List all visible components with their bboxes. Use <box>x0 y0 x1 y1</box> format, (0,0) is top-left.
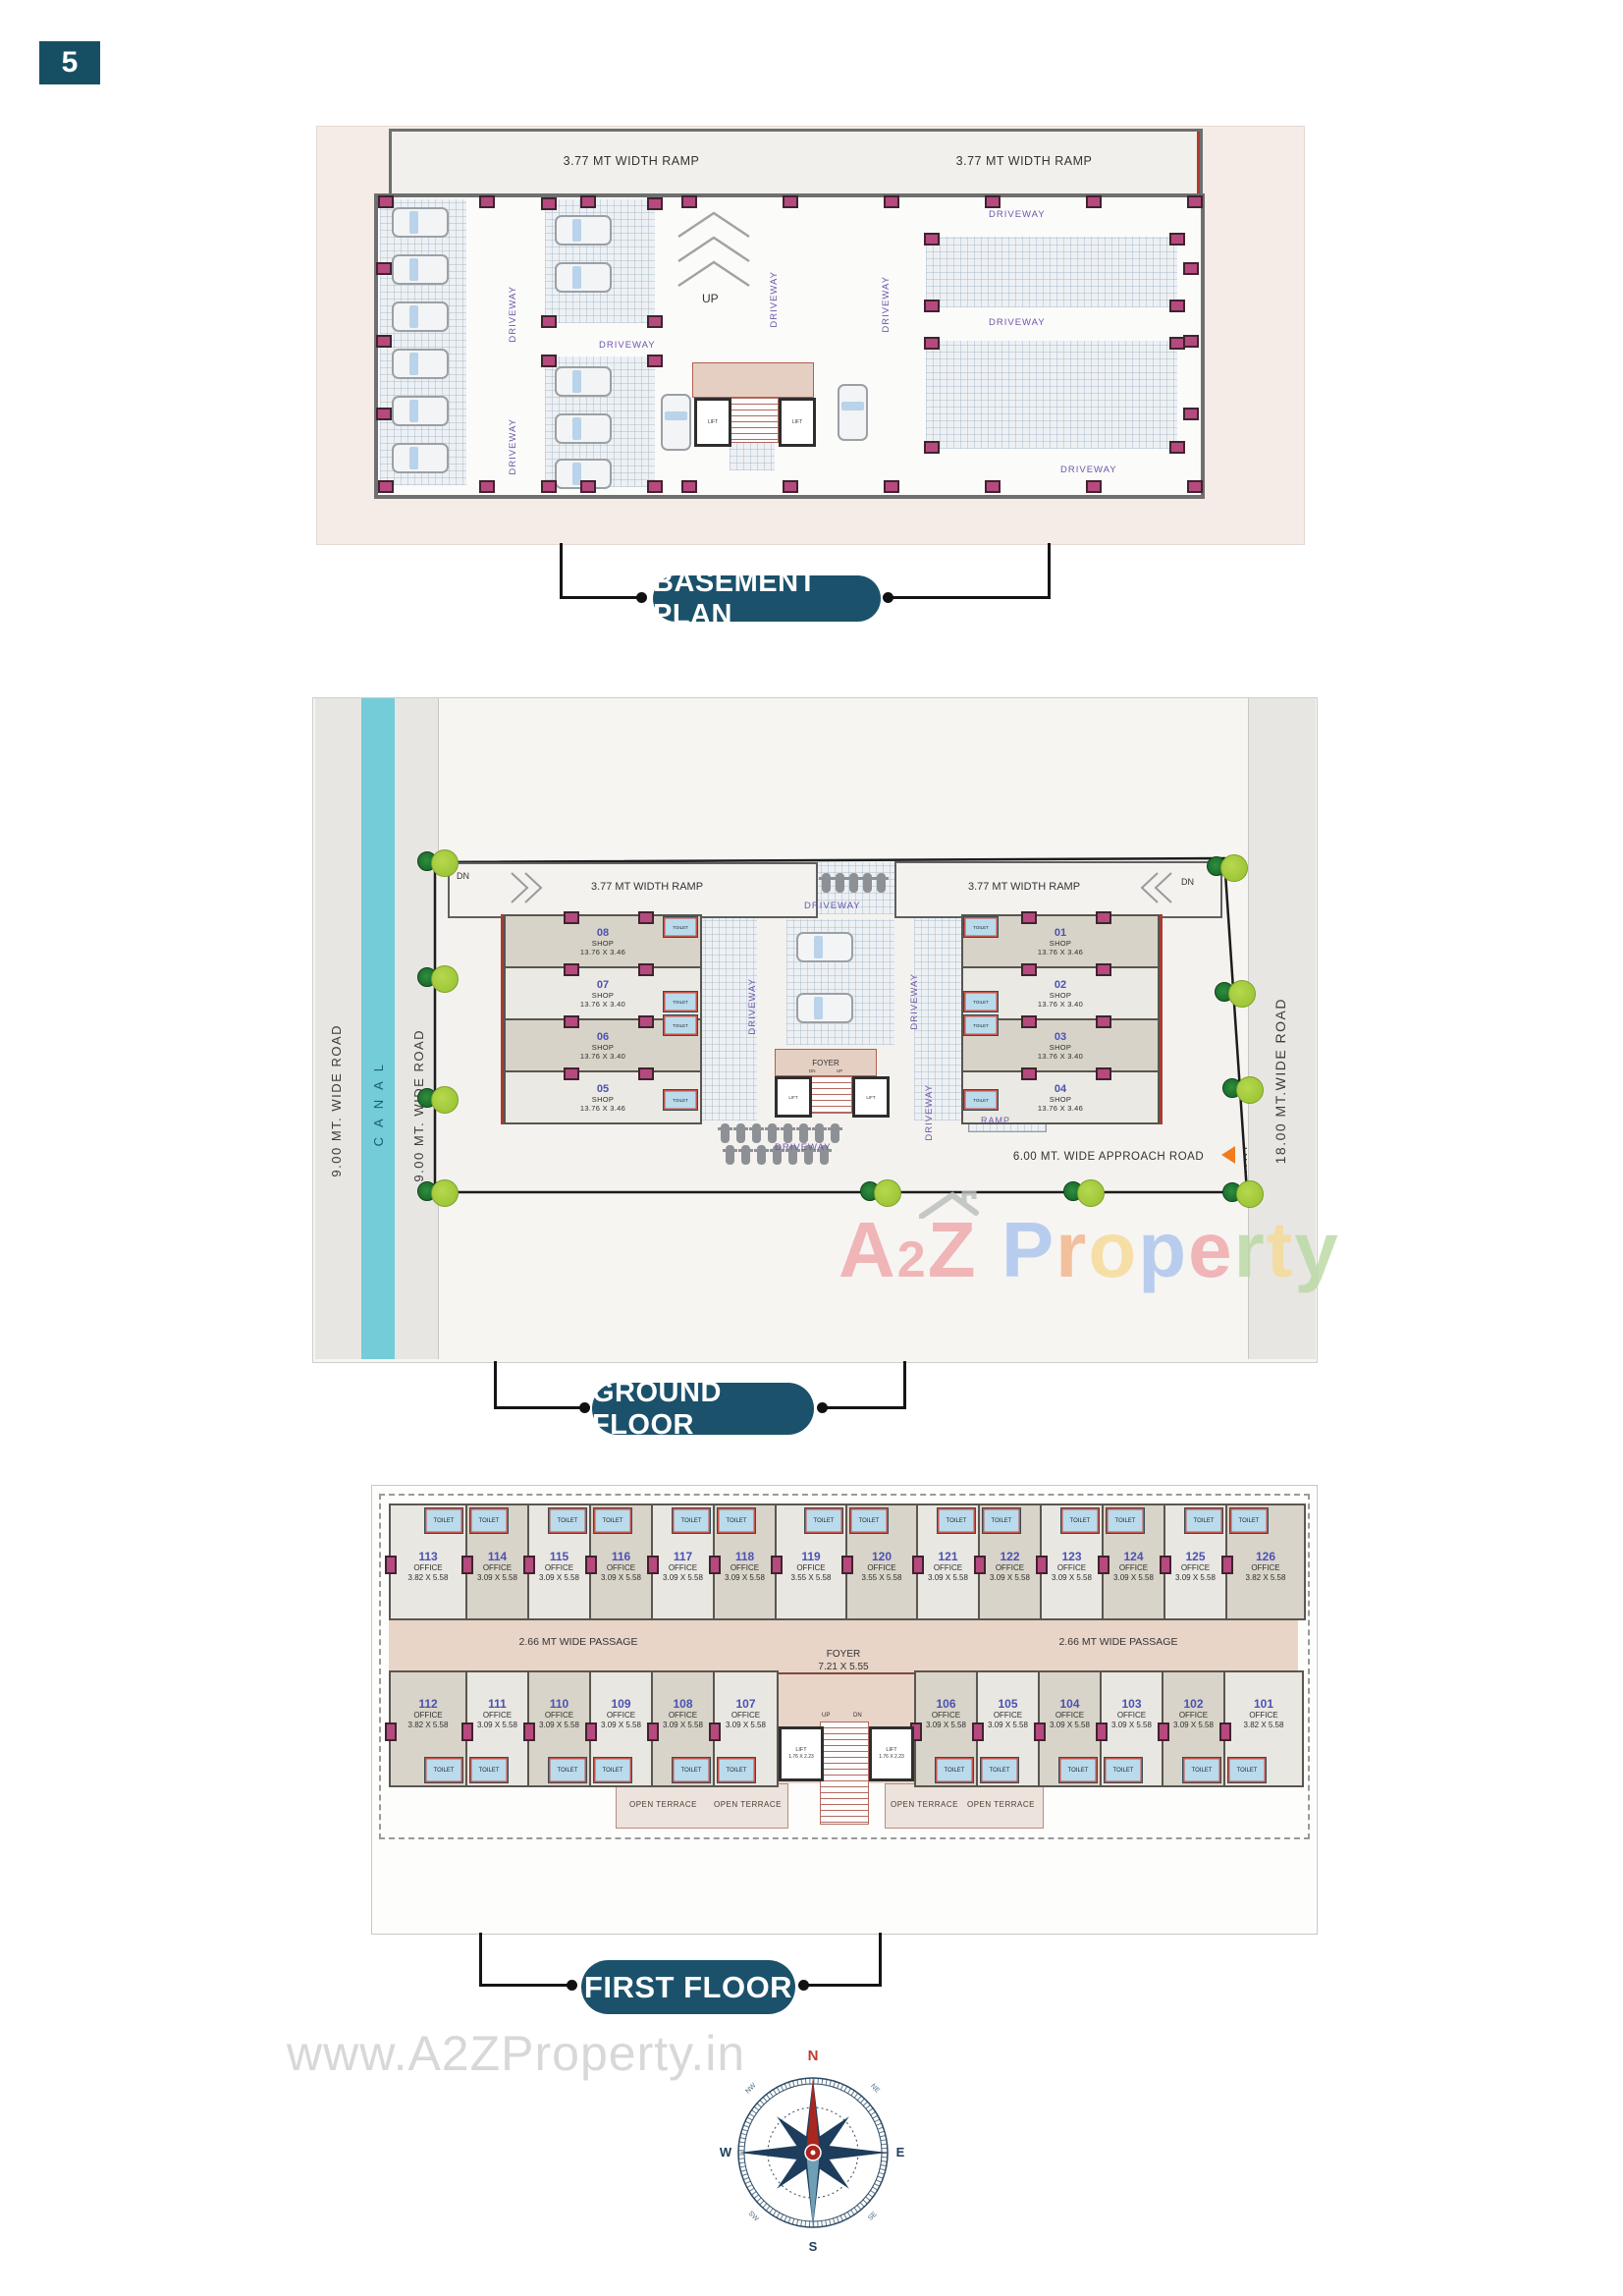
column-marker <box>376 262 392 275</box>
toilet-label: TOILET <box>479 1518 500 1524</box>
toilet-label: TOILET <box>1237 1768 1258 1774</box>
office-number: 118 <box>735 1551 754 1563</box>
page-number-badge: 5 <box>39 41 100 84</box>
bike-icon <box>757 1145 766 1165</box>
toilet-label: TOILET <box>945 1768 965 1774</box>
bike-icon <box>877 873 886 893</box>
connector-line <box>892 596 1051 599</box>
toilet-label: TOILET <box>673 1000 688 1005</box>
driveway-label: DRIVEWAY <box>508 286 518 343</box>
office-number: 103 <box>1121 1698 1141 1711</box>
terrace-label: OPEN TERRACE <box>891 1800 958 1809</box>
connector-line <box>494 1406 584 1409</box>
toilet-label: TOILET <box>673 1098 688 1103</box>
office-label: 109OFFICE3.09 X 5.58 <box>601 1698 641 1730</box>
shop-type: SHOP <box>592 991 614 1000</box>
column-marker <box>1086 195 1102 208</box>
shop-type: SHOP <box>1050 991 1071 1000</box>
shop-number: 02 <box>1055 979 1066 991</box>
toilet-room: TOILET <box>1229 1507 1269 1534</box>
toilet-room: TOILET <box>963 916 999 938</box>
driveway-label: DRIVEWAY <box>909 973 920 1030</box>
office-type: OFFICE <box>607 1563 635 1573</box>
column-marker <box>647 197 663 210</box>
connector-line <box>560 543 563 599</box>
driveway-label: DRIVEWAY <box>804 901 861 911</box>
toilet-label: TOILET <box>673 925 688 930</box>
office-type: OFFICE <box>1179 1711 1208 1721</box>
car-icon <box>796 932 853 962</box>
office-number: 106 <box>936 1698 955 1711</box>
office-unit: 107OFFICE3.09 X 5.58TOILET <box>715 1672 777 1785</box>
office-number: 104 <box>1059 1698 1079 1711</box>
office-unit: 118OFFICE3.09 X 5.58TOILET <box>715 1505 777 1618</box>
tree-foliage-light <box>874 1179 901 1207</box>
office-label: 120OFFICE3.55 X 5.58 <box>862 1551 902 1583</box>
toilet-label: TOILET <box>947 1518 967 1524</box>
shop-dim: 13.76 X 3.46 <box>1038 948 1083 957</box>
connector-dot <box>567 1980 577 1991</box>
shop-dim: 13.76 X 3.40 <box>580 1052 625 1061</box>
column-marker <box>1086 480 1102 493</box>
shop-number: 04 <box>1055 1083 1066 1095</box>
column-marker <box>1183 335 1199 348</box>
office-number: 102 <box>1183 1698 1203 1711</box>
lift-room: LIFT <box>775 1076 812 1118</box>
column-marker <box>985 480 1001 493</box>
column-marker <box>647 480 663 493</box>
connector-line <box>560 596 640 599</box>
office-dim: 3.09 X 5.58 <box>1175 1573 1216 1583</box>
connector-dot <box>883 592 893 603</box>
bike-icon <box>741 1145 750 1165</box>
office-type: OFFICE <box>483 1711 512 1721</box>
bike-icon <box>736 1123 745 1143</box>
compass-se-label: SE <box>867 2211 879 2222</box>
office-row-bottom-right: 106OFFICE3.09 X 5.58TOILET105OFFICE3.09 … <box>914 1670 1304 1787</box>
toilet-label: TOILET <box>727 1768 747 1774</box>
parking-bay <box>926 341 1177 449</box>
shop-type: SHOP <box>592 1043 614 1052</box>
basement-ramp-label-left: 3.77 MT WIDTH RAMP <box>435 154 828 168</box>
toilet-room: TOILET <box>672 1507 711 1534</box>
core-lobby <box>692 362 814 398</box>
lift-dim: 1.76 X 2.23 <box>788 1754 814 1761</box>
car-icon <box>555 215 612 246</box>
terrace-label: OPEN TERRACE <box>629 1800 697 1809</box>
shop-number: 03 <box>1055 1031 1066 1043</box>
connector-line <box>494 1361 497 1409</box>
toilet-room: TOILET <box>980 1757 1019 1783</box>
car-icon <box>392 207 449 238</box>
toilet-room: TOILET <box>1106 1507 1145 1534</box>
office-label: 119OFFICE3.55 X 5.58 <box>791 1551 832 1583</box>
shop-dim: 13.76 X 3.40 <box>1038 1000 1083 1009</box>
car-icon <box>392 443 449 473</box>
column-marker <box>479 195 495 208</box>
column-marker <box>884 195 899 208</box>
toilet-room: TOILET <box>663 1014 698 1036</box>
office-type: OFFICE <box>1251 1563 1279 1573</box>
column-marker <box>580 480 596 493</box>
connector-dot <box>636 592 647 603</box>
office-unit: 120OFFICE3.55 X 5.58TOILET <box>847 1505 918 1618</box>
tree-foliage-light <box>1236 1180 1264 1208</box>
office-label: 106OFFICE3.09 X 5.58 <box>926 1698 966 1730</box>
office-number: 115 <box>550 1551 568 1563</box>
toilet-room: TOILET <box>663 1089 698 1111</box>
lift-room: LIFT <box>779 398 816 447</box>
driveway-label: DRIVEWAY <box>989 209 1046 220</box>
driveway-label: DRIVEWAY <box>769 271 780 328</box>
office-number: 119 <box>801 1551 820 1563</box>
office-dim: 3.82 X 5.58 <box>1246 1573 1286 1583</box>
office-type: OFFICE <box>413 1711 442 1721</box>
office-type: OFFICE <box>413 1563 442 1573</box>
tree-foliage-light <box>431 1179 459 1207</box>
toilet-label: TOILET <box>1194 1518 1215 1524</box>
first-floor-panel: 113OFFICE3.82 X 5.58TOILET114OFFICE3.09 … <box>371 1485 1318 1935</box>
basement-plan-title: BASEMENT PLAN <box>653 575 881 622</box>
column-marker <box>376 408 392 420</box>
office-dim: 3.55 X 5.58 <box>791 1573 832 1583</box>
toilet-room: TOILET <box>1184 1507 1223 1534</box>
office-unit: 124OFFICE3.09 X 5.58TOILET <box>1104 1505 1165 1618</box>
basement-ramp-label-right: 3.77 MT WIDTH RAMP <box>828 154 1220 168</box>
bike-icon <box>784 1123 792 1143</box>
office-number: 116 <box>612 1551 630 1563</box>
foyer-label: FOYER <box>812 1059 839 1067</box>
office-dim: 3.09 X 5.58 <box>601 1721 641 1730</box>
column-marker <box>376 335 392 348</box>
office-dim: 3.82 X 5.58 <box>408 1573 449 1583</box>
column-marker <box>479 480 495 493</box>
car-icon <box>392 349 449 379</box>
driveway-label: DRIVEWAY <box>881 276 892 333</box>
toilet-room: TOILET <box>963 1089 999 1111</box>
office-unit: 125OFFICE3.09 X 5.58TOILET <box>1165 1505 1227 1618</box>
shop-number: 06 <box>597 1031 609 1043</box>
office-label: 125OFFICE3.09 X 5.58 <box>1175 1551 1216 1583</box>
basement-up-label: UP <box>702 292 719 305</box>
toilet-room: TOILET <box>469 1507 509 1534</box>
column-marker <box>985 195 1001 208</box>
lift-room: LIFT <box>694 398 731 447</box>
office-label: 108OFFICE3.09 X 5.58 <box>663 1698 703 1730</box>
driveway-label: DRIVEWAY <box>508 418 518 475</box>
office-type: OFFICE <box>1117 1711 1146 1721</box>
ground-ramp-label-left: 3.77 MT WIDTH RAMP <box>510 881 784 893</box>
office-dim: 3.09 X 5.58 <box>725 1573 765 1583</box>
toilet-label: TOILET <box>727 1518 747 1524</box>
dn-label: DN <box>1181 877 1194 887</box>
compass-rose-icon: N S E W NW NE SW SE <box>715 2045 911 2257</box>
office-dim: 3.09 X 5.58 <box>926 1721 966 1730</box>
staircase <box>808 1076 852 1114</box>
shop-number: 07 <box>597 979 609 991</box>
car-icon <box>555 366 612 397</box>
bike-icon <box>726 1145 734 1165</box>
office-label: 116OFFICE3.09 X 5.58 <box>601 1551 641 1583</box>
toilet-room: TOILET <box>548 1757 587 1783</box>
toilet-label: TOILET <box>1068 1768 1089 1774</box>
office-dim: 3.09 X 5.58 <box>1111 1721 1152 1730</box>
tree-foliage-light <box>431 965 459 993</box>
toilet-room: TOILET <box>849 1507 889 1534</box>
office-type: OFFICE <box>669 1563 697 1573</box>
dn-label: DN <box>853 1713 862 1719</box>
lift-label: LIFT <box>795 1747 806 1754</box>
office-type: OFFICE <box>545 1711 573 1721</box>
lift-label: LIFT <box>788 1095 797 1100</box>
toilet-room: TOILET <box>1058 1757 1098 1783</box>
toilet-label: TOILET <box>992 1518 1012 1524</box>
office-type: OFFICE <box>731 1711 760 1721</box>
office-number: 123 <box>1061 1551 1081 1563</box>
office-unit: 113OFFICE3.82 X 5.58TOILET <box>391 1505 467 1618</box>
office-dim: 3.09 X 5.58 <box>601 1573 641 1583</box>
tree-foliage-light <box>1077 1179 1105 1207</box>
toilet-room: TOILET <box>963 991 999 1012</box>
toilet-room: TOILET <box>663 916 698 938</box>
shop-number: 01 <box>1055 927 1066 939</box>
column-marker <box>1183 262 1199 275</box>
toilet-label: TOILET <box>973 925 989 930</box>
toilet-room: TOILET <box>963 1014 999 1036</box>
first-floor-title: FIRST FLOOR <box>581 1960 795 2014</box>
toilet-label: TOILET <box>859 1518 880 1524</box>
compass-sw-label: SW <box>747 2210 760 2222</box>
office-label: 111OFFICE3.09 X 5.58 <box>477 1698 517 1730</box>
toilet-label: TOILET <box>434 1768 455 1774</box>
office-type: OFFICE <box>483 1563 512 1573</box>
toilet-room: TOILET <box>424 1757 463 1783</box>
office-dim: 3.09 X 5.58 <box>1050 1721 1090 1730</box>
lift-room: LIFT 1.76 X 2.23 <box>779 1726 824 1781</box>
column-marker <box>924 233 940 246</box>
toilet-label: TOILET <box>603 1518 623 1524</box>
connector-line <box>807 1984 882 1987</box>
shop-type: SHOP <box>1050 1043 1071 1052</box>
shop-dim: 13.76 X 3.40 <box>580 1000 625 1009</box>
office-dim: 3.09 X 5.58 <box>1173 1721 1214 1730</box>
office-type: OFFICE <box>994 1711 1022 1721</box>
ground-floor-panel: 9.00 MT. WIDE ROAD CANAL 9.00 MT. WIDE R… <box>312 697 1318 1363</box>
passage-label-left: 2.66 MT WIDE PASSAGE <box>431 1636 726 1648</box>
compass-n-label: N <box>808 2048 819 2064</box>
column-marker <box>1187 480 1203 493</box>
column-marker <box>1169 337 1185 350</box>
page: 5 3.77 MT WIDTH RAMP 3.77 MT WIDTH RAMP … <box>0 0 1623 2296</box>
office-number: 121 <box>938 1551 957 1563</box>
shop-dim: 13.76 X 3.40 <box>1038 1052 1083 1061</box>
staircase <box>820 1722 869 1825</box>
column-marker <box>647 355 663 367</box>
column-marker <box>783 480 798 493</box>
column-marker <box>924 441 940 454</box>
office-number: 117 <box>674 1551 692 1563</box>
toilet-room: TOILET <box>424 1507 463 1534</box>
toilet-label: TOILET <box>990 1768 1010 1774</box>
toilet-label: TOILET <box>434 1518 455 1524</box>
url-watermark: www.A2ZProperty.in <box>287 2025 745 2082</box>
toilet-label: TOILET <box>558 1768 578 1774</box>
connector-line <box>479 1933 482 1987</box>
compass-s-label: S <box>809 2239 818 2254</box>
car-icon <box>796 993 853 1023</box>
driveway-corridor <box>914 914 961 1121</box>
office-dim: 3.09 X 5.58 <box>539 1721 579 1730</box>
office-label: 121OFFICE3.09 X 5.58 <box>928 1551 968 1583</box>
toilet-label: TOILET <box>1239 1518 1260 1524</box>
office-unit: 110OFFICE3.09 X 5.58TOILET <box>529 1672 591 1785</box>
office-type: OFFICE <box>996 1563 1024 1573</box>
office-unit: 108OFFICE3.09 X 5.58TOILET <box>653 1672 715 1785</box>
driveway-label: DRIVEWAY <box>747 978 758 1035</box>
toilet-room: TOILET <box>982 1507 1021 1534</box>
foyer-dim: 7.21 X 5.55 <box>773 1662 914 1672</box>
ramp-chevrons-icon <box>673 207 755 288</box>
ramp-small-label: RAMP <box>981 1116 1010 1125</box>
column-marker <box>681 480 697 493</box>
office-type: OFFICE <box>1055 1711 1084 1721</box>
office-dim: 3.09 X 5.58 <box>988 1721 1028 1730</box>
office-label: 122OFFICE3.09 X 5.58 <box>990 1551 1030 1583</box>
column-marker <box>681 195 697 208</box>
office-number: 122 <box>1000 1551 1019 1563</box>
lift-label: LIFT <box>886 1747 896 1754</box>
connector-line <box>879 1933 882 1987</box>
toilet-label: TOILET <box>973 1000 989 1005</box>
toilet-room: TOILET <box>663 991 698 1012</box>
office-number: 114 <box>488 1551 507 1563</box>
connector-dot <box>579 1402 590 1413</box>
office-unit: 121OFFICE3.09 X 5.58TOILET <box>918 1505 980 1618</box>
column-marker <box>541 315 557 328</box>
bike-icon <box>822 873 831 893</box>
tree-foliage-light <box>431 849 459 877</box>
driveway-label: DRIVEWAY <box>1060 465 1117 475</box>
office-number: 105 <box>998 1698 1017 1711</box>
bike-icon <box>752 1123 761 1143</box>
driveway-label: DRIVEWAY <box>924 1084 935 1141</box>
column-marker <box>541 197 557 210</box>
ground-ramp-label-right: 3.77 MT WIDTH RAMP <box>906 881 1142 893</box>
shop-type: SHOP <box>592 939 614 948</box>
office-label: 117OFFICE3.09 X 5.58 <box>663 1551 703 1583</box>
office-dim: 3.09 X 5.58 <box>726 1721 766 1730</box>
connector-line <box>826 1406 906 1409</box>
column-marker <box>1169 233 1185 246</box>
office-dim: 3.09 X 5.58 <box>928 1573 968 1583</box>
office-type: OFFICE <box>934 1563 962 1573</box>
shop-type: SHOP <box>1050 939 1071 948</box>
column-marker <box>1169 441 1185 454</box>
toilet-label: TOILET <box>1192 1768 1213 1774</box>
office-dim: 3.09 X 5.58 <box>1052 1573 1092 1583</box>
office-number: 109 <box>611 1698 630 1711</box>
column-marker <box>924 337 940 350</box>
dn-label: DN <box>457 871 469 881</box>
office-type: OFFICE <box>1249 1711 1277 1721</box>
office-unit: 126OFFICE3.82 X 5.58TOILET <box>1227 1505 1304 1618</box>
lift-label: LIFT <box>792 419 802 425</box>
toilet-room: TOILET <box>593 1507 632 1534</box>
column-marker <box>1187 195 1203 208</box>
toilet-label: TOILET <box>479 1768 500 1774</box>
column-marker <box>541 480 557 493</box>
toilet-label: TOILET <box>681 1768 702 1774</box>
office-unit: 103OFFICE3.09 X 5.58TOILET <box>1102 1672 1163 1785</box>
office-type: OFFICE <box>796 1563 825 1573</box>
office-label: 112OFFICE3.82 X 5.58 <box>408 1698 449 1730</box>
office-dim: 3.82 X 5.58 <box>1244 1721 1284 1730</box>
toilet-room: TOILET <box>1182 1757 1221 1783</box>
bike-icon <box>831 1123 839 1143</box>
office-type: OFFICE <box>730 1563 759 1573</box>
office-label: 124OFFICE3.09 X 5.58 <box>1113 1551 1154 1583</box>
office-dim: 3.09 X 5.58 <box>477 1721 517 1730</box>
office-unit: 112OFFICE3.82 X 5.58TOILET <box>391 1672 467 1785</box>
bike-icon <box>836 873 844 893</box>
office-unit: 115OFFICE3.09 X 5.58TOILET <box>529 1505 591 1618</box>
office-number: 110 <box>550 1698 568 1711</box>
compass-ne-label: NE <box>869 2083 881 2095</box>
office-unit: 122OFFICE3.09 X 5.58TOILET <box>980 1505 1042 1618</box>
shop-dim: 13.76 X 3.46 <box>580 948 625 957</box>
office-unit: 119OFFICE3.55 X 5.58TOILET <box>777 1505 847 1618</box>
bike-icon <box>863 873 872 893</box>
toilet-label: TOILET <box>1113 1768 1134 1774</box>
connector-line <box>479 1984 571 1987</box>
up-label: UP <box>837 1068 842 1073</box>
compass-nw-label: NW <box>744 2082 757 2095</box>
office-label: 103OFFICE3.09 X 5.58 <box>1111 1698 1152 1730</box>
bike-icon <box>849 873 858 893</box>
car-icon <box>392 301 449 332</box>
office-label: 104OFFICE3.09 X 5.58 <box>1050 1698 1090 1730</box>
connector-line <box>1048 543 1051 599</box>
shop-number: 05 <box>597 1083 609 1095</box>
terrace-label: OPEN TERRACE <box>967 1800 1035 1809</box>
office-dim: 3.55 X 5.58 <box>862 1573 902 1583</box>
office-number: 124 <box>1123 1551 1143 1563</box>
office-unit: 116OFFICE3.09 X 5.58TOILET <box>591 1505 653 1618</box>
toilet-room: TOILET <box>1060 1507 1100 1534</box>
bike-icon <box>768 1123 777 1143</box>
office-number: 111 <box>488 1698 507 1711</box>
column-marker <box>884 480 899 493</box>
office-label: 126OFFICE3.82 X 5.58 <box>1246 1551 1286 1583</box>
car-icon <box>555 413 612 444</box>
office-label: 102OFFICE3.09 X 5.58 <box>1173 1698 1214 1730</box>
bike-icon <box>815 1123 824 1143</box>
office-number: 108 <box>673 1698 692 1711</box>
toilet-room: TOILET <box>593 1757 632 1783</box>
approach-road-label: 6.00 MT. WIDE APPROACH ROAD <box>981 1151 1236 1163</box>
lift-dim: 1.76 X 2.23 <box>879 1754 904 1761</box>
toilet-label: TOILET <box>558 1518 578 1524</box>
lift-room: LIFT <box>852 1076 890 1118</box>
toilet-label: TOILET <box>973 1023 989 1028</box>
shop-number: 08 <box>597 927 609 939</box>
ground-floor-title: GROUND FLOOR <box>592 1383 814 1435</box>
toilet-label: TOILET <box>1070 1518 1091 1524</box>
toilet-room: TOILET <box>1227 1757 1267 1783</box>
toilet-room: TOILET <box>935 1757 974 1783</box>
office-type: OFFICE <box>867 1563 895 1573</box>
office-dim: 3.09 X 5.58 <box>990 1573 1030 1583</box>
